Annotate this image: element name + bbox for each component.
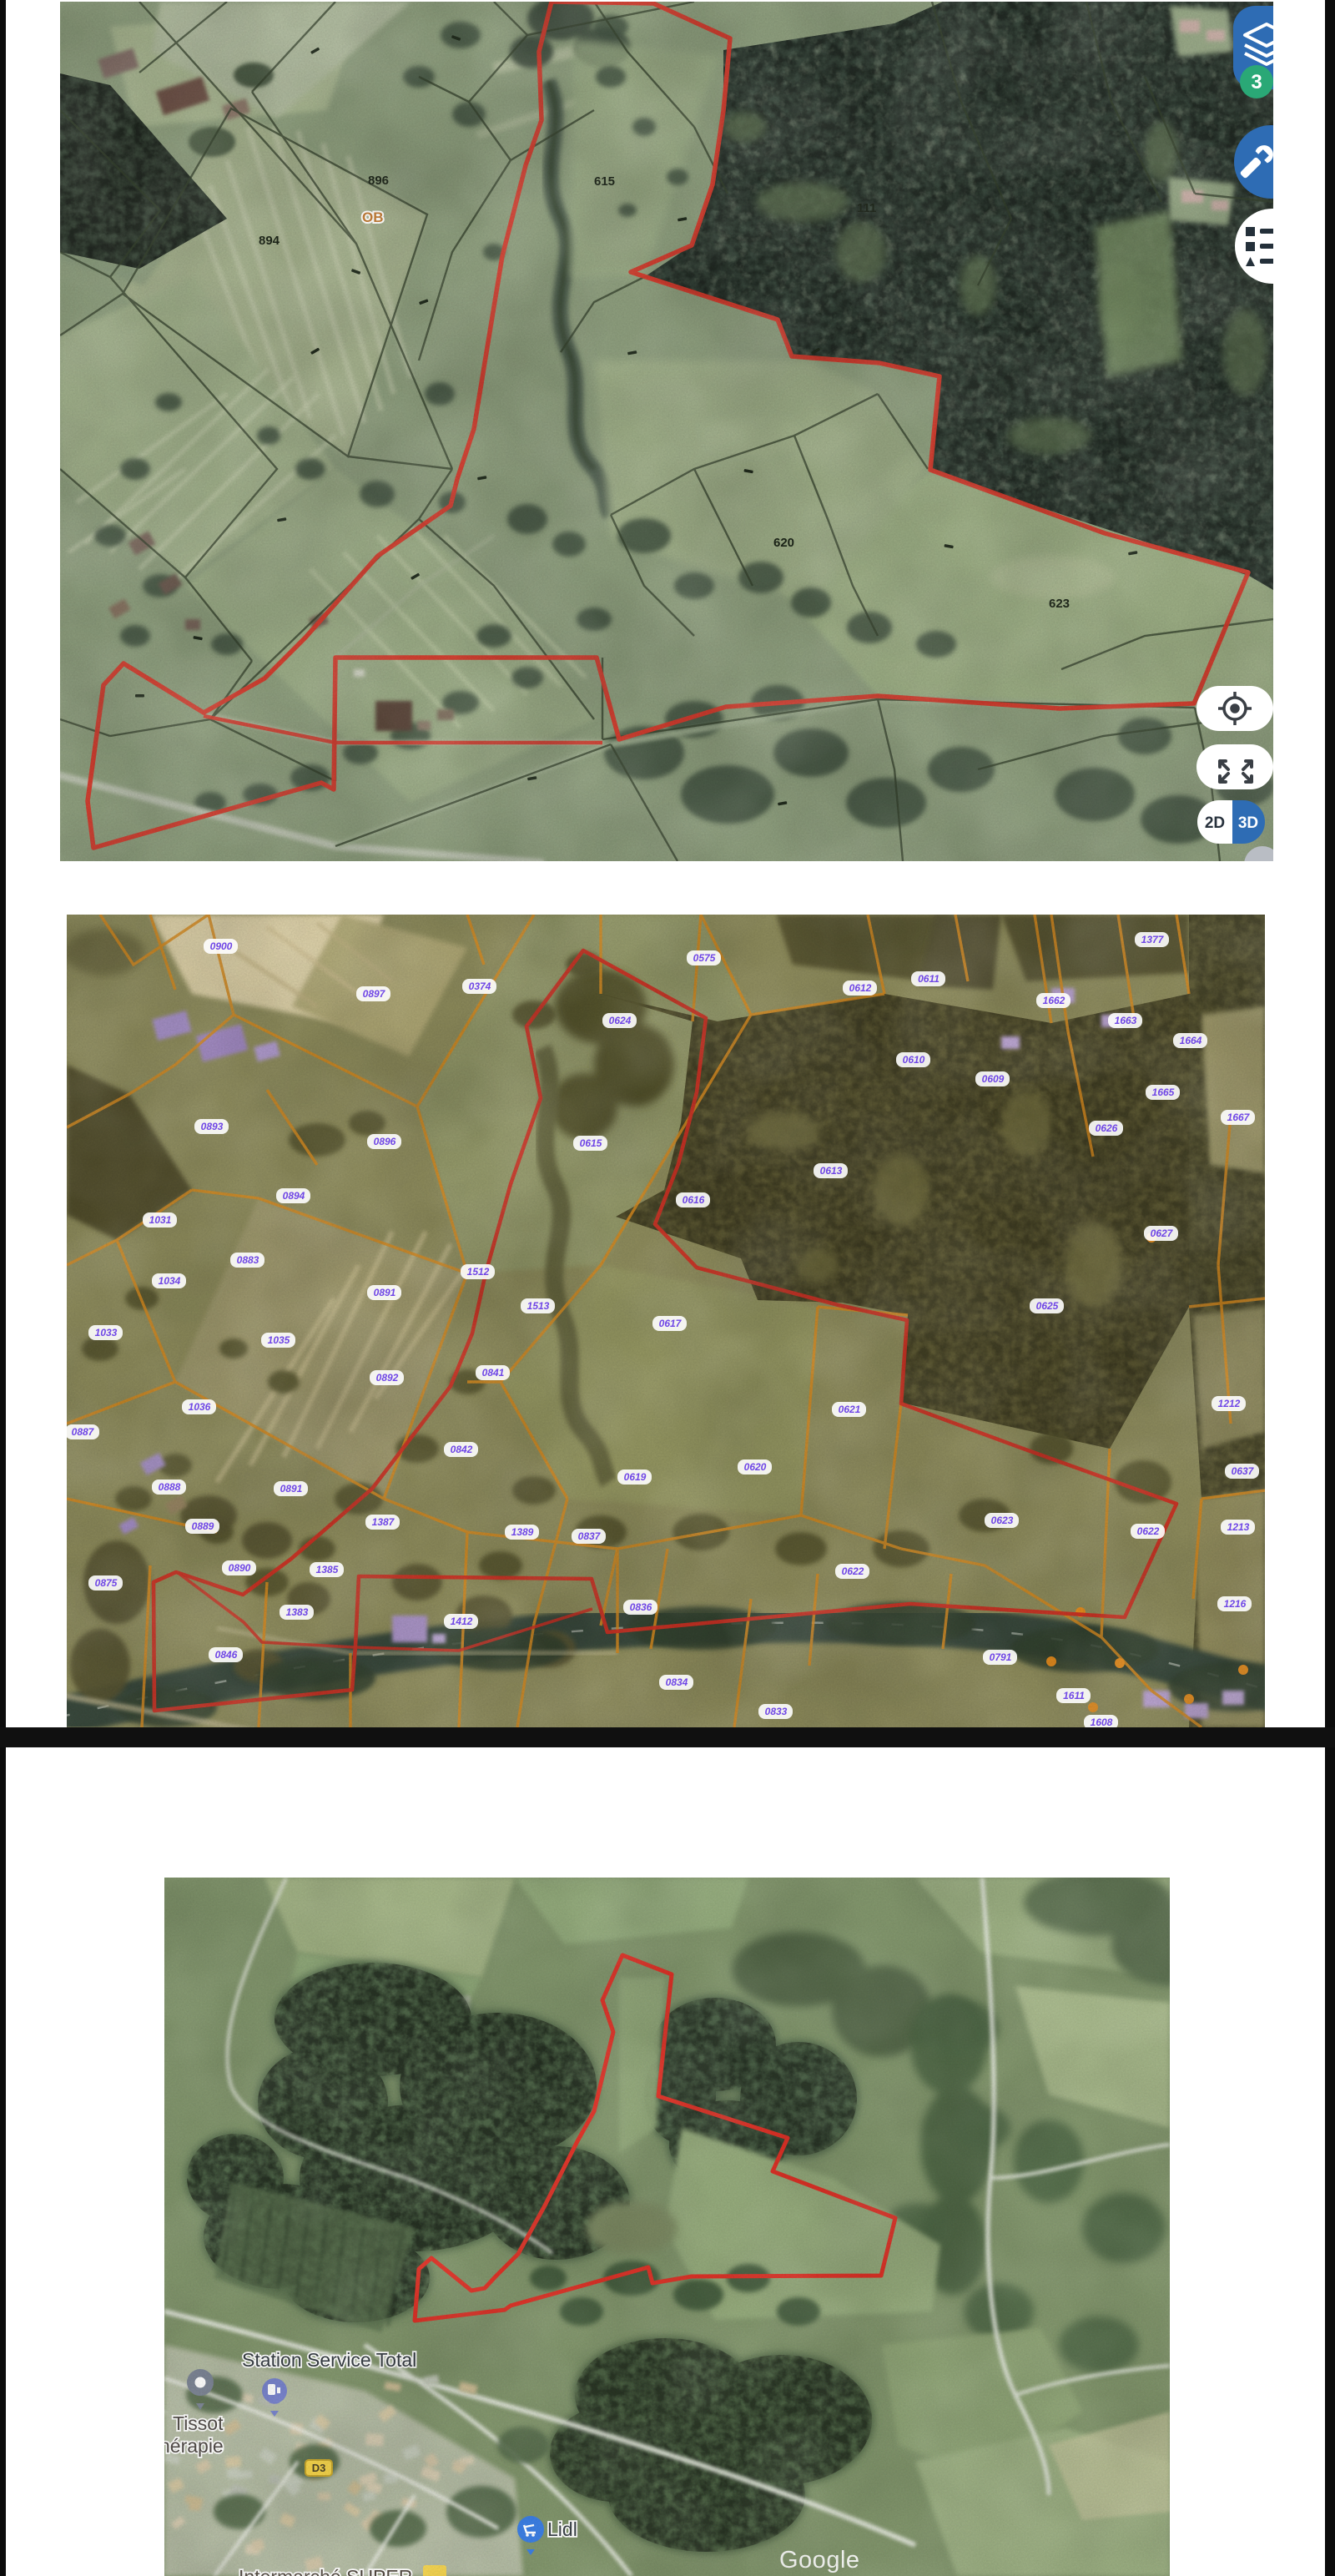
- svg-text:0889: 0889: [192, 1520, 214, 1532]
- svg-text:0617: 0617: [659, 1318, 683, 1329]
- svg-text:0891: 0891: [374, 1287, 396, 1298]
- svg-text:1513: 1513: [527, 1300, 550, 1312]
- svg-text:0626: 0626: [1096, 1122, 1118, 1134]
- svg-text:0623: 0623: [991, 1515, 1014, 1526]
- svg-text:0611: 0611: [918, 973, 940, 985]
- svg-text:3: 3: [1251, 71, 1262, 93]
- svg-text:0622: 0622: [1137, 1525, 1160, 1537]
- svg-text:0897: 0897: [363, 988, 386, 1000]
- svg-text:3D: 3D: [1238, 814, 1258, 832]
- svg-text:0890: 0890: [229, 1562, 251, 1574]
- svg-text:1216: 1216: [1224, 1598, 1247, 1610]
- svg-text:0613: 0613: [820, 1165, 843, 1177]
- svg-text:1608: 1608: [1091, 1716, 1113, 1727]
- svg-text:1387: 1387: [372, 1516, 395, 1528]
- svg-text:0619: 0619: [624, 1471, 647, 1483]
- svg-text:1035: 1035: [268, 1334, 290, 1346]
- svg-text:0883: 0883: [237, 1254, 259, 1266]
- svg-text:1412: 1412: [451, 1616, 473, 1627]
- svg-text:1033: 1033: [95, 1327, 118, 1338]
- svg-text:1667: 1667: [1227, 1112, 1251, 1123]
- svg-text:0612: 0612: [849, 982, 872, 994]
- svg-text:0837: 0837: [578, 1530, 602, 1542]
- svg-text:0621: 0621: [839, 1404, 861, 1415]
- svg-text:0833: 0833: [765, 1706, 788, 1717]
- svg-text:1212: 1212: [1218, 1398, 1241, 1409]
- svg-text:1512: 1512: [467, 1266, 490, 1278]
- svg-text:0893: 0893: [201, 1121, 224, 1132]
- svg-text:1036: 1036: [189, 1401, 211, 1413]
- svg-text:0620: 0620: [744, 1461, 767, 1473]
- svg-text:0615: 0615: [580, 1137, 602, 1149]
- svg-text:0841: 0841: [482, 1367, 505, 1379]
- svg-text:0791: 0791: [990, 1651, 1012, 1663]
- svg-text:0892: 0892: [376, 1372, 399, 1384]
- svg-text:0374: 0374: [469, 980, 491, 992]
- svg-text:1665: 1665: [1152, 1086, 1175, 1098]
- svg-text:0637: 0637: [1232, 1465, 1255, 1477]
- svg-text:1664: 1664: [1180, 1035, 1202, 1046]
- svg-text:0894: 0894: [283, 1190, 305, 1202]
- svg-text:1611: 1611: [1063, 1690, 1085, 1701]
- svg-text:0842: 0842: [451, 1444, 473, 1455]
- svg-text:0896: 0896: [374, 1136, 396, 1147]
- svg-text:0616: 0616: [683, 1194, 705, 1206]
- svg-text:1031: 1031: [149, 1214, 172, 1226]
- svg-text:0888: 0888: [159, 1481, 181, 1493]
- svg-text:0609: 0609: [982, 1073, 1005, 1085]
- svg-text:1389: 1389: [511, 1526, 534, 1538]
- svg-text:0575: 0575: [693, 952, 716, 964]
- svg-text:1213: 1213: [1227, 1521, 1250, 1533]
- svg-text:2D: 2D: [1205, 814, 1225, 832]
- svg-text:1377: 1377: [1141, 934, 1165, 945]
- svg-text:0891: 0891: [280, 1483, 303, 1495]
- svg-text:1034: 1034: [159, 1275, 181, 1287]
- svg-text:0836: 0836: [630, 1601, 652, 1613]
- svg-text:0610: 0610: [903, 1054, 925, 1066]
- svg-text:0887: 0887: [72, 1426, 95, 1438]
- svg-text:1662: 1662: [1043, 995, 1065, 1006]
- svg-text:0622: 0622: [842, 1565, 864, 1577]
- svg-text:0625: 0625: [1036, 1300, 1059, 1312]
- svg-text:0900: 0900: [210, 940, 233, 952]
- svg-text:0875: 0875: [95, 1577, 118, 1589]
- svg-text:0846: 0846: [215, 1649, 238, 1661]
- svg-text:1383: 1383: [286, 1606, 309, 1618]
- svg-text:0624: 0624: [609, 1015, 632, 1026]
- svg-text:1663: 1663: [1115, 1015, 1137, 1026]
- svg-text:0834: 0834: [666, 1676, 688, 1688]
- svg-text:1385: 1385: [316, 1564, 339, 1575]
- svg-text:0627: 0627: [1151, 1228, 1174, 1239]
